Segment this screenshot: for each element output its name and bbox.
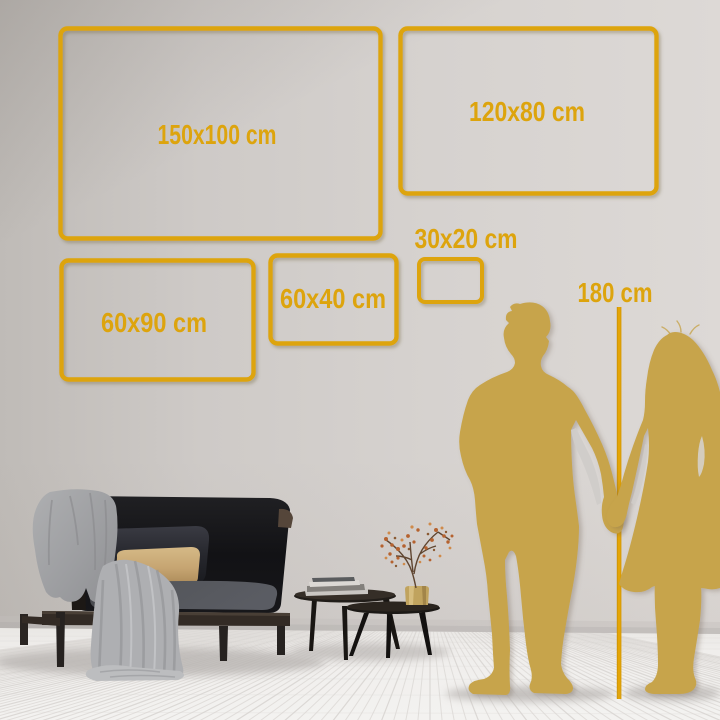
svg-text:150x100 cm: 150x100 cm [158,119,277,150]
svg-text:60x40 cm: 60x40 cm [280,283,386,314]
svg-text:120x80 cm: 120x80 cm [469,96,585,127]
svg-text:60x90 cm: 60x90 cm [101,307,207,338]
svg-text:30x20 cm: 30x20 cm [415,223,518,254]
svg-text:180 cm: 180 cm [578,277,653,308]
